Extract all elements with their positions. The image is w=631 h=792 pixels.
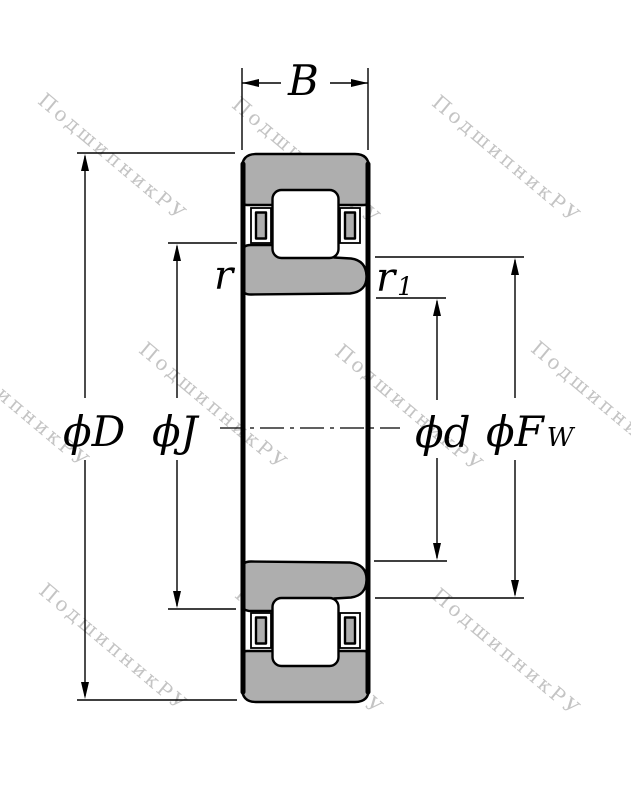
label-outer-diameter: ϕD [63,407,125,456]
arrowhead-rib-diameter-top [173,244,181,261]
arrowhead-raceway-diameter-top [511,258,519,275]
roller-top [273,190,339,258]
arrowhead-bore-diameter-bottom [433,543,441,560]
bearing-drawing-page: ПодшипникРУ ПодшипникРУ ПодшипникРУ Подш… [0,0,631,792]
label-inner-chamfer-subscript: 1 [397,272,413,301]
arrowhead-outer-diameter-bottom [81,682,89,699]
label-rib-diameter: ϕJ [152,407,200,456]
label-bore-diameter: ϕd [415,408,471,457]
arrowhead-rib-diameter-bottom [173,591,181,608]
label-inner-chamfer: r1 [376,255,413,301]
label-raceway-diameter: ϕFW [486,407,576,456]
technical-drawing: B ϕD ϕJ ϕd ϕFW r r1 [0,0,631,792]
label-raceway-diameter-main: ϕF [486,407,546,456]
label-width: B [287,56,319,105]
label-outer-chamfer: r [214,253,236,299]
arrowhead-raceway-diameter-bottom [511,580,519,597]
cage-bar-bottom-right [345,618,355,644]
label-raceway-diameter-subscript: W [547,423,576,453]
arrowhead-bore-diameter-top [433,299,441,316]
cage-bar-top-right [345,213,355,239]
cage-bar-bottom-left [256,618,266,644]
roller-bottom [273,598,339,666]
arrowhead-width-right [351,79,368,87]
cage-bar-top-left [256,213,266,239]
arrowhead-outer-diameter-top [81,154,89,171]
label-inner-chamfer-main: r [376,255,398,301]
arrowhead-width-left [242,79,259,87]
